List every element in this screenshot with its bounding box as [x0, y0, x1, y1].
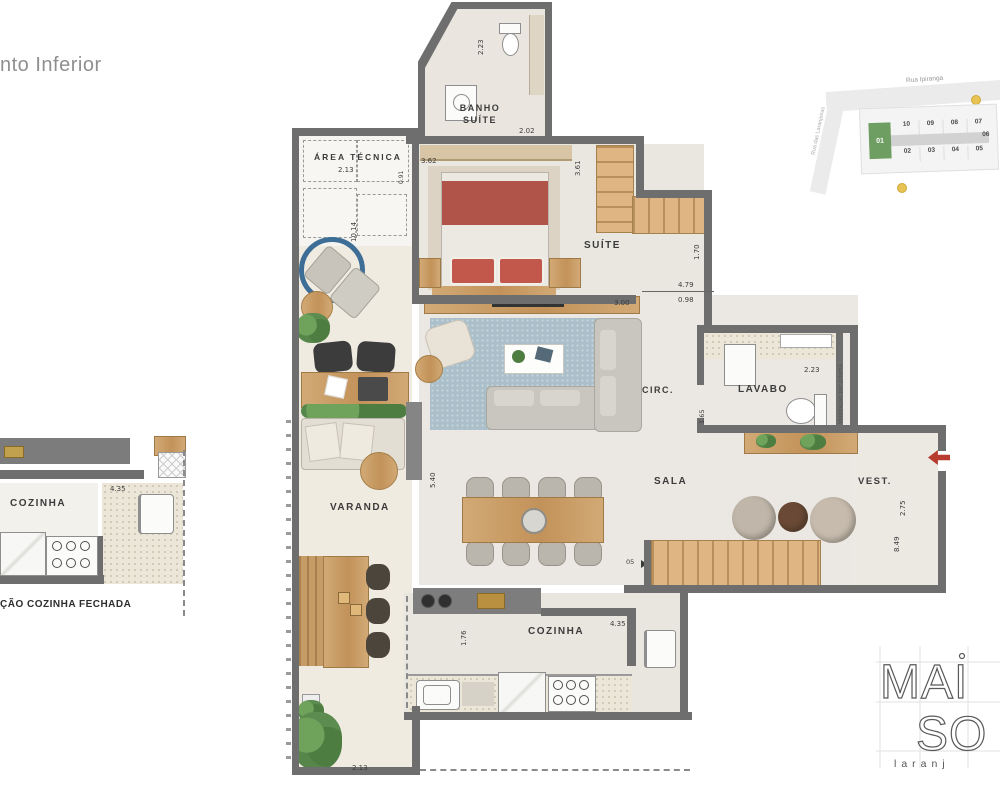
bar-tray — [350, 604, 362, 616]
planter-strip — [301, 404, 407, 418]
room-label-banho: BANHO — [425, 103, 535, 113]
nightstand — [419, 258, 441, 288]
inset-stove — [46, 536, 98, 576]
room-label-sala: SALA — [654, 476, 687, 487]
wall — [697, 333, 704, 385]
dimension: 1.65 — [698, 398, 706, 424]
bar-stool — [366, 632, 390, 658]
unit-cell: 09 — [918, 119, 943, 134]
room-label-vest: VEST. — [858, 476, 892, 487]
dashed-boundary — [183, 450, 185, 616]
fridge — [644, 630, 676, 668]
wall — [680, 593, 688, 720]
dining-chair — [574, 540, 602, 566]
dining-chair — [466, 540, 494, 566]
pouf-table — [360, 452, 398, 490]
dining-chair — [502, 540, 530, 566]
wardrobe — [420, 145, 572, 161]
street-name-top: Rua Ipiranga — [906, 75, 944, 85]
wall — [406, 136, 644, 144]
nightstand — [549, 258, 581, 288]
island-bowl — [421, 594, 435, 608]
dashed-boundary — [406, 596, 408, 708]
bar-stool — [366, 564, 390, 590]
unit-cell: 03 — [919, 146, 944, 161]
wall — [644, 540, 651, 588]
bed-pillow — [450, 257, 496, 285]
lavabo-shelf — [780, 334, 832, 348]
dimension: 2.02 — [519, 127, 535, 135]
room-label-cozinha: COZINHA — [528, 626, 584, 637]
wall — [404, 712, 692, 720]
room-banho-suite: BANHO SUÍTE 2.23 2.02 — [418, 2, 552, 144]
island-tray — [477, 593, 505, 609]
unit-cell: 06 — [977, 131, 995, 145]
dimension: 1.76 — [460, 616, 468, 646]
dimension: 2.23 — [477, 19, 485, 55]
wall — [850, 325, 858, 433]
unit-cell: 02 — [895, 147, 920, 162]
stove — [548, 676, 596, 712]
room-label-varanda: VARANDA — [330, 502, 390, 513]
equipment-box — [303, 188, 357, 238]
wall — [938, 425, 946, 451]
inset-room-label-cozinha: COZINHA — [10, 498, 66, 509]
dimension: 2.23 — [804, 366, 820, 374]
brand-logo: MAI SO laranj — [876, 646, 1000, 788]
sofa-cushion — [600, 376, 616, 416]
island-bowl — [438, 594, 452, 608]
dimension: 8.49 — [893, 522, 901, 552]
inset-caption: ÇÃO COZINHA FECHADA — [0, 599, 131, 610]
dimension: 4.35 — [610, 620, 626, 628]
table-centerpiece — [521, 508, 547, 534]
wall — [627, 608, 636, 666]
stair-number: 05 — [626, 558, 634, 566]
dining-chair — [538, 540, 566, 566]
wall — [292, 128, 420, 136]
room-label-area-tecnica: ÁREA TÉCNICA — [306, 152, 410, 162]
side-table — [415, 355, 443, 383]
room-label-banho-suite: SUÍTE — [425, 115, 535, 125]
unit-cell: 10 — [894, 120, 919, 135]
dimension: 5.40 — [429, 458, 437, 488]
dimension: 2.13 — [338, 166, 354, 174]
plant — [296, 313, 330, 343]
site-map: Rua Ipiranga Rua das Laranjeiras 01 10 0… — [818, 58, 1000, 204]
unit-cell: 05 — [967, 145, 991, 160]
banho-floor: BANHO SUÍTE 2.23 2.02 — [425, 9, 545, 137]
room-label-lavabo: LAVABO — [738, 384, 788, 395]
inset-plan: COZINHA 4.35 ÇÃO COZINHA FECHADA — [0, 430, 190, 620]
toilet-bowl — [502, 33, 519, 56]
page-title: nto Inferior — [0, 54, 102, 77]
sofa-cushion — [600, 330, 616, 370]
bed-pillow — [498, 257, 544, 285]
dimension: 2.13 — [352, 764, 368, 772]
bar-counter — [323, 556, 369, 668]
dimension: 4.35 — [110, 485, 126, 493]
wall — [412, 136, 419, 304]
room-vest-floor — [850, 433, 938, 585]
wall — [636, 190, 712, 198]
wall — [697, 325, 858, 333]
map-marker-dot — [897, 183, 907, 193]
shower-bench — [529, 15, 544, 95]
dimension: 3.61 — [574, 146, 582, 176]
wall — [412, 295, 636, 304]
balcony-railing — [286, 420, 291, 768]
pouf — [732, 496, 776, 540]
toilet-bowl — [786, 398, 816, 424]
pouf — [810, 497, 856, 543]
inset-tray — [4, 446, 24, 458]
shelf-plant — [756, 434, 776, 448]
lavabo-sink — [724, 344, 756, 386]
bed-cover — [442, 181, 548, 225]
logo-subtitle: laranj — [894, 758, 950, 770]
wall — [636, 136, 644, 198]
sink-basin — [423, 685, 451, 705]
wall — [624, 585, 946, 593]
counter-mat — [462, 682, 494, 706]
staircase-lower — [651, 540, 821, 590]
unit-cell: 04 — [943, 146, 968, 161]
plant — [292, 712, 342, 770]
desk — [301, 372, 409, 408]
desk-paper — [324, 375, 348, 399]
unit-01-highlight: 01 — [868, 122, 891, 159]
staircase-upper — [596, 145, 634, 233]
equipment-box — [357, 194, 407, 236]
kitchen-cabinet — [498, 672, 546, 714]
table-plant — [512, 350, 525, 363]
unit-cell: 08 — [942, 119, 967, 134]
office-chair — [313, 340, 354, 374]
wall — [697, 425, 946, 433]
bed — [441, 172, 549, 290]
inset-fridge — [138, 494, 174, 534]
logo-line2: SO — [916, 708, 987, 761]
pouf — [778, 502, 808, 532]
room-label-circ: CIRC. — [642, 385, 674, 395]
daybed-pillow — [305, 422, 342, 462]
wall — [938, 471, 946, 593]
toilet-tank — [814, 394, 827, 426]
floor-plan-page: nto Inferior — [0, 0, 1000, 800]
sofa-cushion — [494, 390, 534, 406]
dimension-line — [642, 291, 714, 292]
dimension: 3.00 — [614, 299, 630, 307]
logo-line1: MAI — [880, 656, 968, 709]
building-plate: 01 10 09 08 07 02 03 04 05 06 — [859, 104, 999, 175]
staircase-upper — [632, 196, 706, 234]
dimension: 0.98 — [678, 296, 694, 304]
office-chair — [356, 341, 396, 374]
logo-letters: MAI SO — [876, 646, 1000, 768]
shelf-plant — [800, 434, 826, 450]
ventilation-note: Ventilação por prisma — [838, 338, 844, 424]
wall — [292, 128, 299, 775]
wall — [0, 575, 104, 584]
desk-laptop — [358, 377, 388, 401]
bar-stool — [366, 598, 390, 624]
dimension: 10.14 — [350, 192, 358, 242]
bar-tray — [338, 592, 350, 604]
wall — [0, 470, 144, 479]
dimension: 4.79 — [678, 281, 694, 289]
dimension: 3.62 — [421, 157, 437, 165]
dashed-boundary — [420, 769, 690, 771]
kitchen-sink — [416, 680, 460, 710]
privacy-panel — [406, 402, 422, 480]
inset-cabinet-box — [0, 532, 46, 576]
wall — [541, 608, 635, 616]
wall — [704, 190, 712, 333]
dimension: 0.91 — [398, 158, 405, 184]
dimension: 2.75 — [899, 486, 907, 516]
dimension: 1.70 — [693, 232, 701, 260]
bar-slats — [299, 556, 323, 666]
room-label-suite: SUÍTE — [584, 240, 621, 251]
sofa-cushion — [540, 390, 580, 406]
inset-closet — [158, 452, 186, 478]
